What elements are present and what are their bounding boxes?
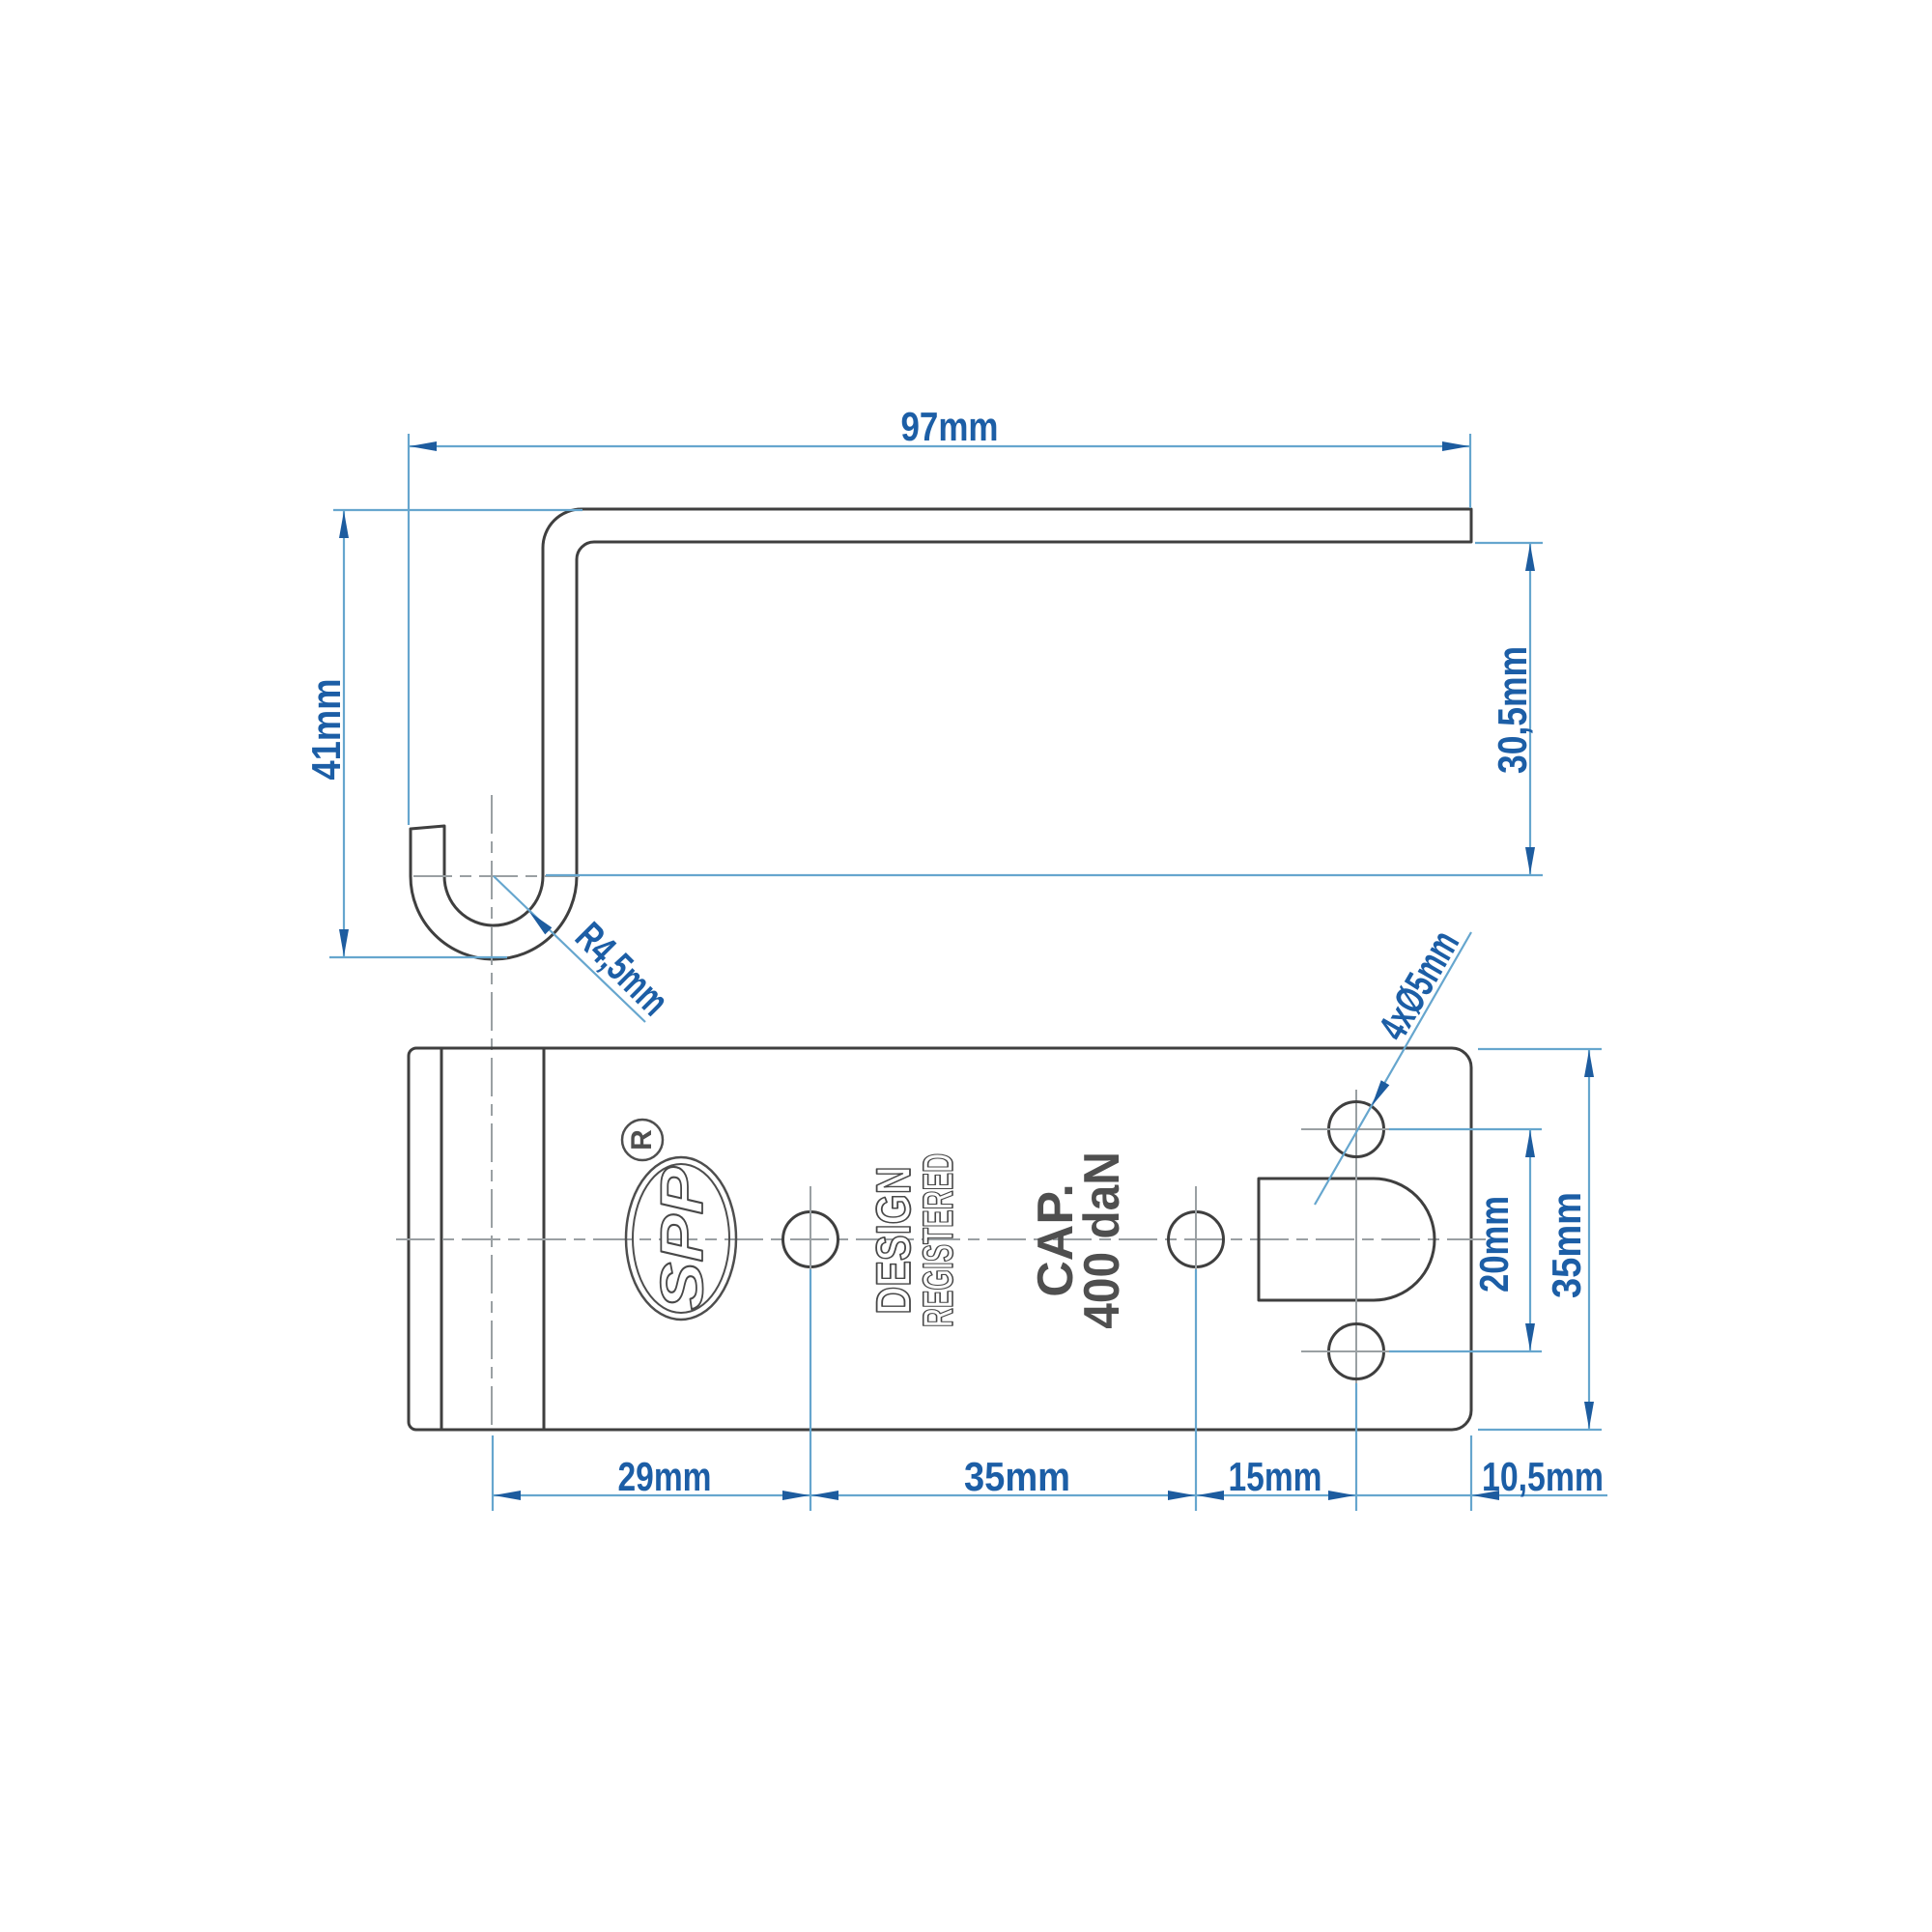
svg-text:R: R [626,1129,658,1151]
svg-text:REGISTERED: REGISTERED [915,1153,962,1327]
svg-text:97mm: 97mm [901,404,999,449]
svg-text:41mm: 41mm [303,679,349,781]
svg-text:10,5mm: 10,5mm [1482,1454,1604,1499]
svg-text:DESIGN: DESIGN [867,1166,921,1314]
svg-text:SPP: SPP [649,1166,716,1310]
svg-text:30,5mm: 30,5mm [1490,646,1535,774]
svg-text:400 daN: 400 daN [1074,1151,1130,1328]
svg-text:29mm: 29mm [618,1454,712,1499]
svg-text:15mm: 15mm [1229,1454,1322,1499]
svg-text:20mm: 20mm [1471,1196,1517,1293]
svg-text:35mm: 35mm [1544,1192,1589,1298]
svg-text:35mm: 35mm [964,1454,1070,1499]
